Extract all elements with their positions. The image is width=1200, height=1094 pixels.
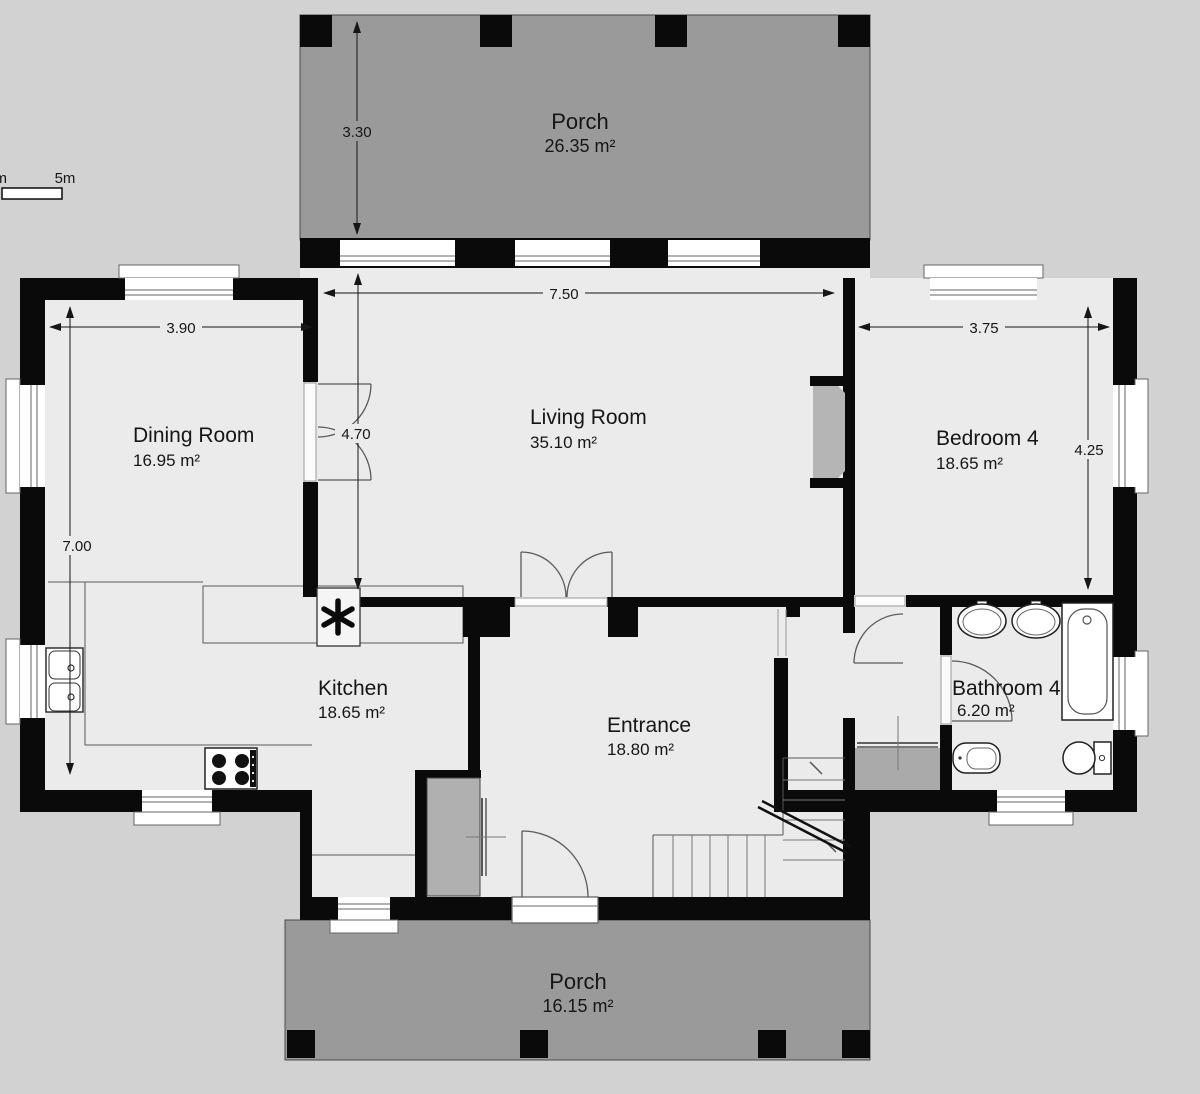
dim-porch-depth: 3.30 bbox=[342, 124, 371, 141]
room-area: 26.35 m² bbox=[544, 136, 615, 156]
room-area: 35.10 m² bbox=[530, 433, 597, 452]
room-name: Bathroom 4 bbox=[952, 677, 1061, 700]
room-label-porch-top: Porch 26.35 m² bbox=[544, 109, 615, 156]
room-name: Kitchen bbox=[318, 677, 388, 700]
room-name: Entrance bbox=[607, 714, 691, 737]
dim-left-depth: 7.00 bbox=[62, 538, 91, 555]
room-area: 6.20 m² bbox=[957, 701, 1015, 720]
bathtub bbox=[1062, 603, 1113, 720]
room-area: 16.95 m² bbox=[133, 451, 200, 470]
dim-dining-width: 3.90 bbox=[166, 320, 195, 337]
dim-living-depth: 4.70 bbox=[341, 426, 370, 443]
window bbox=[1113, 379, 1148, 493]
fridge bbox=[317, 588, 360, 646]
bidet bbox=[953, 743, 1000, 773]
room-name: Porch bbox=[551, 109, 608, 134]
window bbox=[119, 265, 239, 300]
dim-bedroom-depth: 4.25 bbox=[1074, 442, 1103, 459]
room-area: 18.80 m² bbox=[607, 740, 674, 759]
room-name: Dining Room bbox=[133, 424, 254, 447]
window bbox=[134, 790, 220, 825]
room-label-porch-bottom: Porch 16.15 m² bbox=[542, 969, 613, 1016]
window bbox=[6, 379, 45, 493]
floor-plan-svg: 3.30 7.50 3.90 4.70 7.00 3.75 4.25 Porch… bbox=[0, 0, 1200, 1094]
dim-living-width: 7.50 bbox=[549, 286, 578, 303]
room-area: 18.65 m² bbox=[936, 454, 1003, 473]
stove bbox=[205, 748, 257, 789]
window bbox=[668, 240, 760, 266]
room-area: 18.65 m² bbox=[318, 703, 385, 722]
window bbox=[340, 240, 455, 266]
room-name: Bedroom 4 bbox=[936, 427, 1039, 450]
room-name: Porch bbox=[549, 969, 606, 994]
floor-plan-viewport: 3.30 7.50 3.90 4.70 7.00 3.75 4.25 Porch… bbox=[0, 0, 1200, 1094]
window bbox=[515, 240, 610, 266]
toilet bbox=[1063, 742, 1111, 774]
dim-bedroom-width: 3.75 bbox=[969, 320, 998, 337]
scale-bar: 5m m bbox=[0, 170, 75, 199]
window bbox=[924, 265, 1043, 300]
scale-end-label: 5m bbox=[55, 170, 76, 187]
window bbox=[1113, 651, 1148, 736]
room-label-kitchen: Kitchen 18.65 m² bbox=[318, 677, 388, 722]
scale-start-label: m bbox=[0, 170, 7, 187]
window bbox=[989, 790, 1073, 825]
kitchen-sink bbox=[46, 648, 83, 712]
window bbox=[330, 897, 398, 933]
window bbox=[6, 639, 45, 724]
fireplace bbox=[813, 386, 845, 478]
room-area: 16.15 m² bbox=[542, 996, 613, 1016]
room-name: Living Room bbox=[530, 406, 647, 429]
